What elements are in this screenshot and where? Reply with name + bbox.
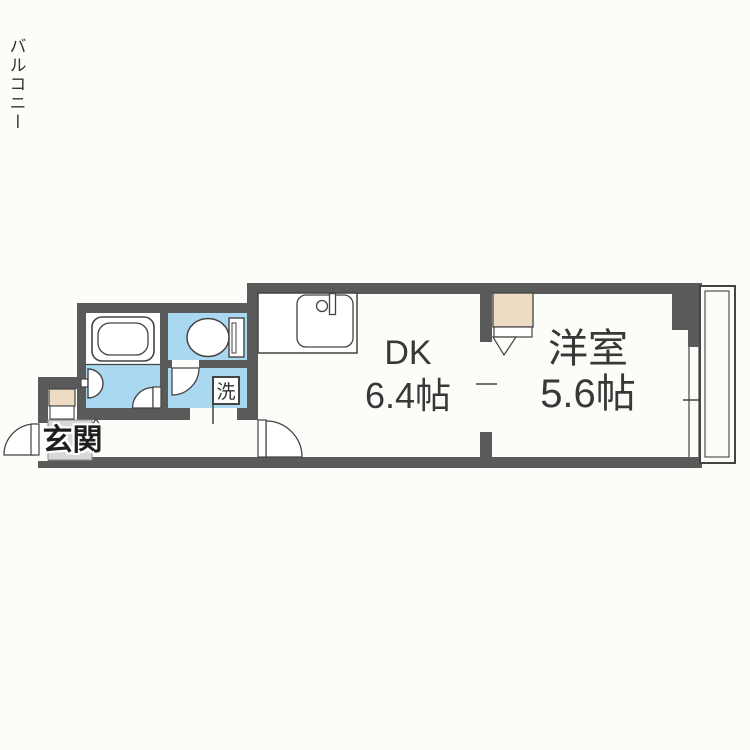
toilet	[187, 318, 244, 357]
shoe-cabinet-lower	[50, 406, 74, 419]
western-room-size: 5.6帖	[488, 372, 688, 416]
washing-machine-box: 洗	[212, 376, 240, 405]
dk-room-label: DK 6.4帖	[308, 332, 508, 417]
entrance-label: 玄関	[25, 424, 120, 458]
shoe-cabinet	[49, 389, 75, 406]
west-window-opening	[688, 347, 700, 457]
western-room-name: 洋室	[488, 327, 688, 372]
balcony	[700, 286, 735, 463]
dk-size: 6.4帖	[308, 374, 508, 417]
wall-left-upper	[77, 303, 86, 420]
wall-bath-dk	[247, 283, 258, 420]
bathtub	[92, 317, 154, 361]
dk-name: DK	[308, 332, 508, 374]
western-room-label: 洋室 5.6帖	[488, 327, 688, 416]
wall-pillar	[672, 283, 700, 330]
wall-bottom	[38, 457, 702, 468]
faucet	[330, 294, 336, 315]
wall-top-bathroom	[77, 303, 258, 313]
floor-plan: 玄関 洗 DK 6.4帖 洋室 5.6帖 バルコニー	[0, 0, 750, 750]
laundry-label: 洗	[216, 377, 235, 404]
sink-drain	[317, 301, 328, 312]
dk-door-arc	[258, 420, 302, 457]
